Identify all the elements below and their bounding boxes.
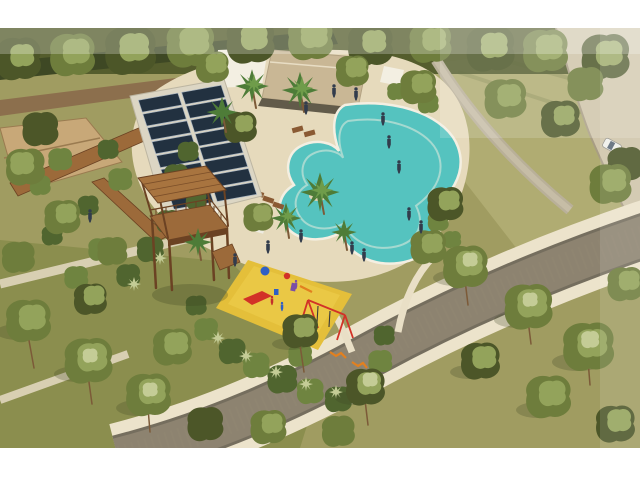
play-dome: [261, 267, 270, 276]
tower-shadow: [152, 284, 228, 306]
play-roof-red: [284, 273, 290, 279]
frame-bottom-band: [0, 448, 640, 480]
render-image: [0, 0, 640, 480]
frame-top-band: [0, 0, 640, 28]
play-panel-blue: [274, 289, 279, 295]
